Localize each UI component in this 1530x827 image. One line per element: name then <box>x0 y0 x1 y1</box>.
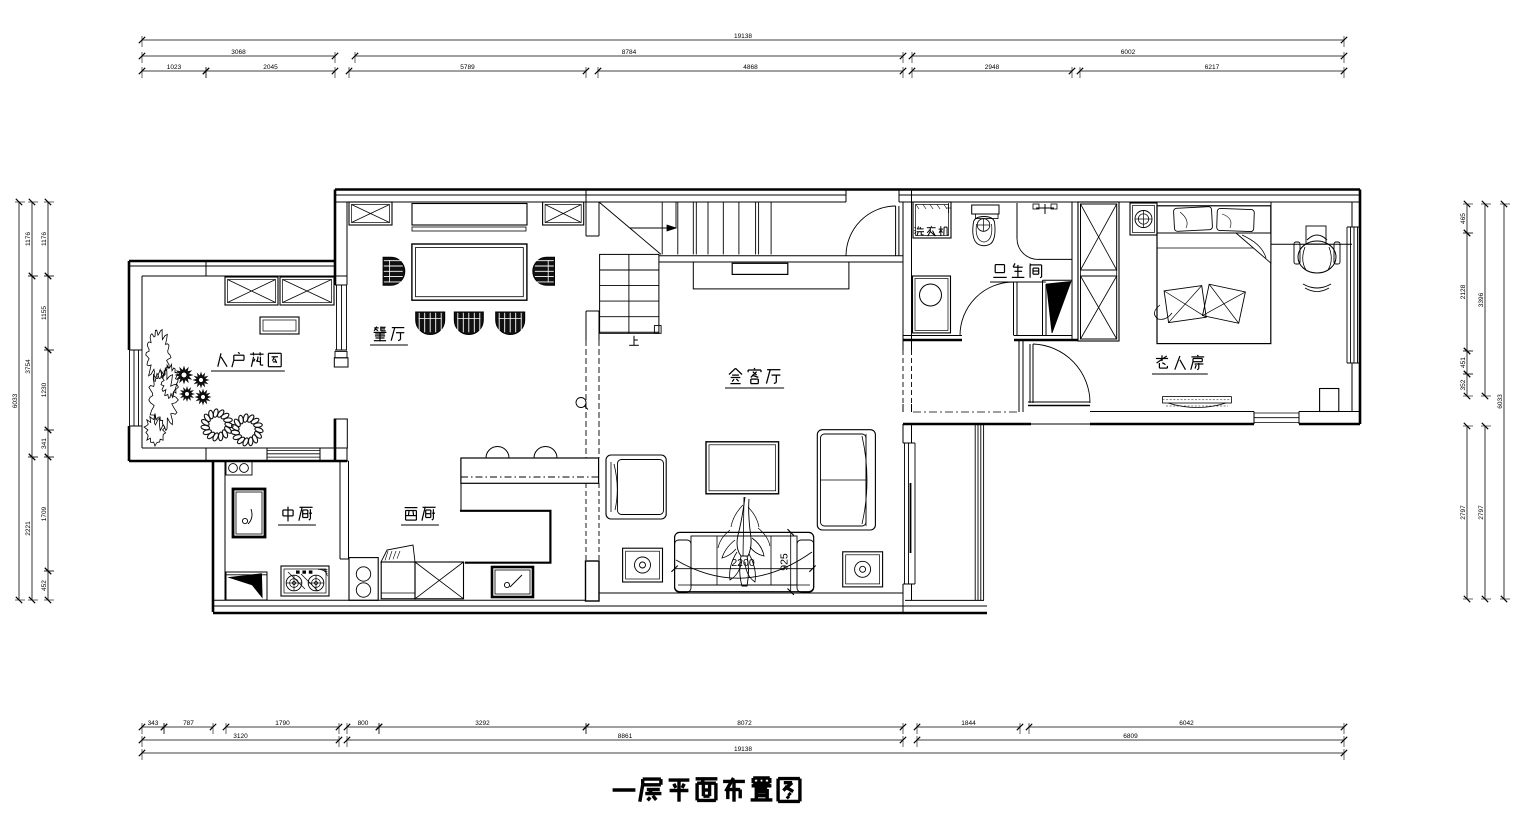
svg-text:3068: 3068 <box>231 49 246 56</box>
svg-text:2948: 2948 <box>985 64 1000 71</box>
svg-text:5789: 5789 <box>460 64 475 71</box>
svg-text:3292: 3292 <box>475 720 490 727</box>
svg-text:8861: 8861 <box>618 733 633 740</box>
svg-text:452: 452 <box>41 580 48 591</box>
svg-text:1230: 1230 <box>41 382 48 397</box>
svg-text:2797: 2797 <box>1478 505 1485 520</box>
svg-text:6042: 6042 <box>1179 720 1194 727</box>
svg-text:6809: 6809 <box>1123 733 1138 740</box>
svg-text:6217: 6217 <box>1205 64 1220 71</box>
svg-text:1023: 1023 <box>167 64 182 71</box>
svg-text:1844: 1844 <box>961 720 976 727</box>
svg-text:352: 352 <box>1460 379 1467 390</box>
svg-text:465: 465 <box>1460 213 1467 224</box>
svg-text:341: 341 <box>41 438 48 449</box>
svg-text:3120: 3120 <box>233 733 248 740</box>
svg-text:3396: 3396 <box>1478 292 1485 307</box>
svg-text:1790: 1790 <box>275 720 290 727</box>
svg-text:451: 451 <box>1460 357 1467 368</box>
svg-text:1709: 1709 <box>41 506 48 521</box>
svg-text:2221: 2221 <box>25 521 32 536</box>
svg-text:800: 800 <box>358 720 369 727</box>
svg-text:2045: 2045 <box>263 64 278 71</box>
svg-text:787: 787 <box>183 720 194 727</box>
svg-text:8784: 8784 <box>622 49 637 56</box>
svg-text:1176: 1176 <box>41 232 48 246</box>
svg-text:343: 343 <box>148 720 159 727</box>
svg-text:4868: 4868 <box>743 64 758 71</box>
svg-text:1176: 1176 <box>25 232 32 246</box>
svg-text:8072: 8072 <box>737 720 752 727</box>
svg-text:3754: 3754 <box>25 359 32 374</box>
svg-text:6002: 6002 <box>1121 49 1136 56</box>
svg-text:2797: 2797 <box>1460 505 1467 520</box>
svg-text:2200: 2200 <box>731 557 755 569</box>
svg-text:925: 925 <box>779 553 791 571</box>
svg-text:6033: 6033 <box>1497 394 1504 409</box>
svg-text:6033: 6033 <box>12 393 19 408</box>
svg-text:2128: 2128 <box>1460 284 1467 299</box>
svg-text:1155: 1155 <box>41 306 48 320</box>
svg-text:19138: 19138 <box>734 746 752 753</box>
svg-text:19138: 19138 <box>734 33 752 40</box>
